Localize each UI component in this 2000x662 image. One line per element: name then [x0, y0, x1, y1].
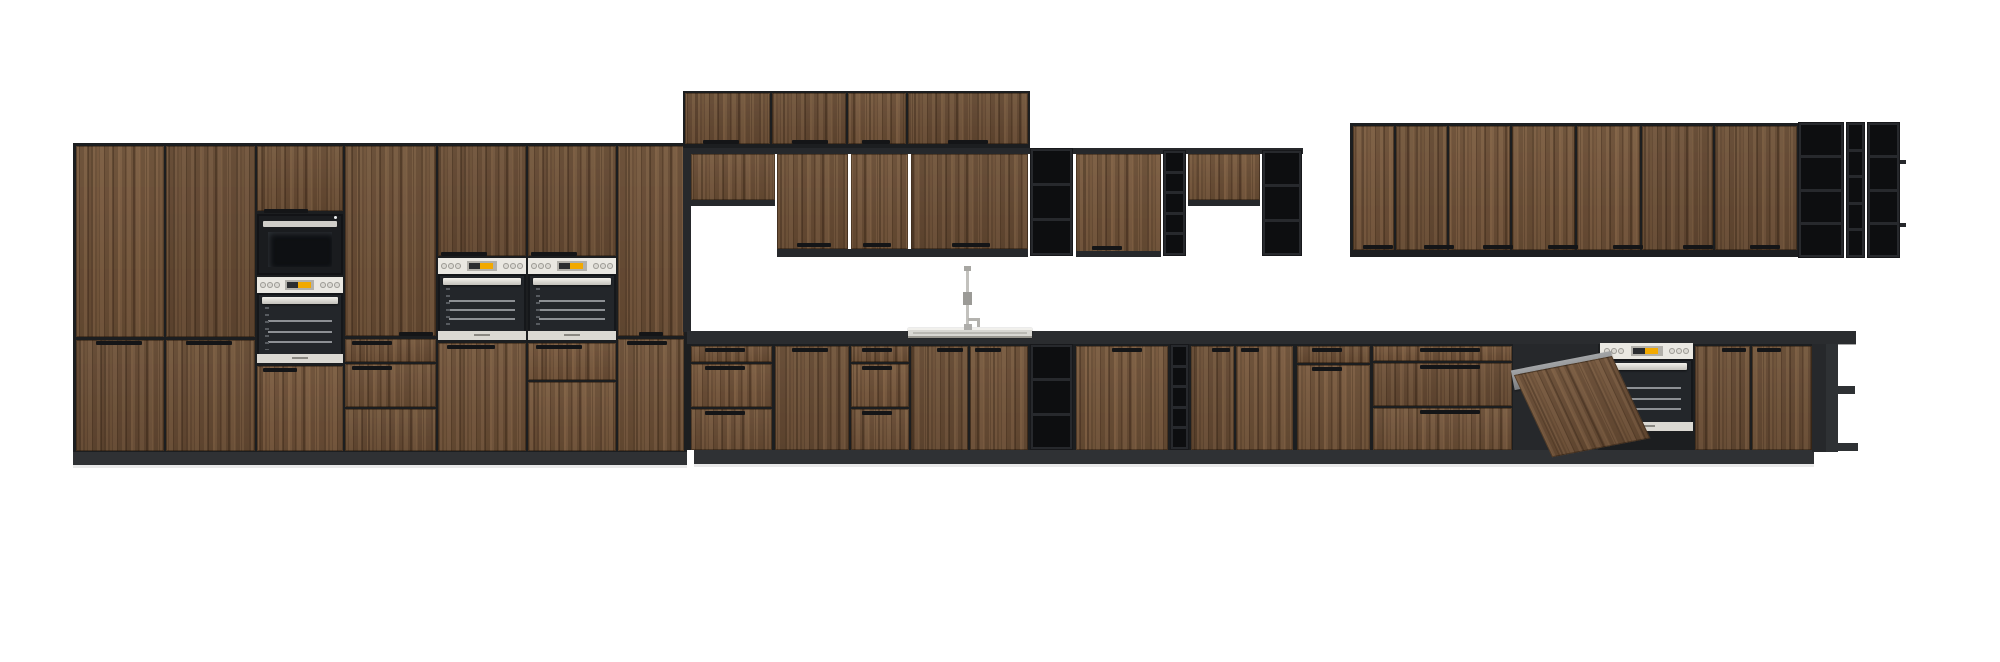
wall-door-short[interactable]: [1188, 154, 1260, 200]
appliance-column-drawer[interactable]: [257, 366, 343, 451]
handle: [1613, 245, 1643, 249]
end-open-shelf: [1838, 386, 1855, 394]
handle: [1420, 365, 1480, 369]
microwave-handle-bar: [263, 221, 337, 227]
oven-display-screen: [1633, 348, 1645, 354]
wall-door-3[interactable]: [911, 154, 1028, 249]
end-side-panel: [1812, 344, 1826, 452]
right-wall-door-1[interactable]: [1353, 126, 1394, 250]
open-shelf-grid-col-1[interactable]: [1798, 122, 1844, 258]
tall-door-4-upper[interactable]: [618, 146, 684, 336]
wall-oven-1-top-door[interactable]: [438, 146, 526, 256]
shelf-side-tip: [1900, 223, 1906, 227]
oven-rack: [449, 318, 514, 320]
cabinet-underside: [777, 249, 1028, 257]
handle: [536, 345, 582, 349]
handle: [96, 341, 142, 345]
oven-rack: [268, 320, 332, 322]
oven-display-value: [480, 263, 493, 269]
shelf-compartment: [1166, 235, 1183, 253]
end-shelf-board: [1826, 344, 1838, 452]
handle: [1312, 367, 1342, 371]
shelf-compartment: [1173, 409, 1186, 427]
handle: [937, 348, 963, 352]
base-door-1[interactable]: [775, 346, 849, 450]
handle: [1420, 410, 1480, 414]
shelf-compartment: [1033, 221, 1070, 253]
handle: [705, 411, 745, 415]
oven-rack-rail: [446, 288, 450, 327]
open-shelf-grid-col-3[interactable]: [1867, 122, 1900, 258]
base-run-plinth[interactable]: [694, 450, 1814, 464]
tall-built-in-oven[interactable]: [257, 277, 343, 363]
handle: [639, 332, 663, 336]
shelf-compartment: [1870, 192, 1897, 222]
wall-top-door-1[interactable]: [685, 93, 770, 144]
cabinet-underside: [691, 200, 775, 206]
compact-oven[interactable]: [257, 214, 343, 275]
shelf-compartment: [1265, 222, 1299, 253]
open-shelf-unit[interactable]: [1262, 150, 1302, 256]
shelf-compartment: [1173, 429, 1186, 447]
base-door-4[interactable]: [1236, 346, 1293, 450]
oven-display-screen: [469, 263, 480, 269]
handle: [627, 341, 667, 345]
right-wall-door-7[interactable]: [1715, 126, 1797, 250]
handle: [264, 209, 308, 213]
oven-knob: [1669, 348, 1675, 354]
shelf-compartment: [1849, 152, 1862, 176]
wall-door-2[interactable]: [851, 154, 908, 249]
open-shelf-unit[interactable]: [1030, 148, 1073, 256]
cabinet-underside: [1076, 251, 1161, 257]
shelf-compartment: [1166, 194, 1183, 212]
kitchen-elevation-canvas[interactable]: [0, 0, 2000, 662]
shelf-compartment: [1849, 178, 1862, 202]
open-shelf-grid-col-2[interactable]: [1846, 122, 1865, 258]
oven-knob: [1611, 348, 1617, 354]
base-drawer-4c[interactable]: [1373, 408, 1512, 450]
shelf-side-tip: [1900, 160, 1906, 164]
oven-knob: [1676, 348, 1682, 354]
base-drawer-1b[interactable]: [691, 364, 772, 407]
wall-oven-2-lower-door[interactable]: [528, 382, 616, 451]
handle: [975, 348, 1001, 352]
handle: [1092, 246, 1122, 250]
oven-knob: [260, 282, 266, 288]
tall-door-4-lower[interactable]: [618, 339, 684, 451]
base-open-shelf-column[interactable]: [1170, 344, 1189, 450]
oven-handle-bar: [262, 297, 338, 304]
tall-door-3[interactable]: [345, 146, 436, 336]
oven-rack: [268, 331, 332, 333]
oven-knob: [517, 263, 523, 269]
base-drawer-4b[interactable]: [1373, 363, 1512, 406]
handle: [705, 348, 745, 352]
right-wall-door-4[interactable]: [1512, 126, 1575, 250]
tall-door-1-upper[interactable]: [76, 146, 164, 337]
base-drawer-1c[interactable]: [691, 409, 772, 450]
wall-oven-2[interactable]: [528, 258, 616, 340]
oven-brand-mark: [564, 334, 580, 336]
faucet-spray-head: [963, 292, 972, 305]
wall-oven-1-lower-door[interactable]: [438, 343, 526, 451]
tall-door-2-lower[interactable]: [166, 340, 255, 451]
handle: [1424, 245, 1454, 249]
shelf-compartment: [1033, 381, 1070, 412]
oven-rack: [539, 300, 604, 302]
left-run-plinth[interactable]: [73, 452, 687, 465]
oven-rack-rail: [536, 288, 540, 327]
handle: [1363, 245, 1393, 249]
handle: [1722, 348, 1746, 352]
oven-knob: [267, 282, 273, 288]
shelf-compartment: [1870, 158, 1897, 188]
oven-knob: [334, 282, 340, 288]
oven-handle-bar: [443, 278, 520, 285]
oven-display-value: [298, 282, 311, 288]
shelf-compartment: [1033, 186, 1070, 218]
sink-rim-shadow: [908, 336, 1032, 338]
oven-rack: [539, 318, 604, 320]
shelf-compartment: [1166, 174, 1183, 192]
handle: [797, 243, 831, 247]
handle: [862, 348, 892, 352]
wall-oven-1[interactable]: [438, 258, 526, 340]
handle: [952, 243, 990, 247]
tall-door-2-upper[interactable]: [166, 146, 255, 337]
oven-knob: [274, 282, 280, 288]
shelf-compartment: [1801, 225, 1841, 255]
faucet-top-cap: [964, 266, 971, 271]
handle: [352, 366, 392, 370]
faucet-base: [964, 324, 972, 330]
oven-display-screen: [559, 263, 570, 269]
shelf-compartment: [1870, 225, 1897, 255]
faucet-spout-tip: [977, 318, 980, 327]
sink-basin-line: [913, 332, 1027, 334]
oven-knob: [593, 263, 599, 269]
oven-knob: [600, 263, 606, 269]
handle: [792, 348, 828, 352]
wall-top-door-2[interactable]: [772, 93, 846, 144]
tall-end-side-panel: [683, 148, 691, 332]
sink-base-door-left[interactable]: [911, 346, 968, 450]
handle: [862, 411, 892, 415]
handle: [1241, 348, 1259, 352]
small-wall-cabinet-door[interactable]: [691, 154, 775, 200]
handle: [705, 366, 745, 370]
handle: [1420, 348, 1480, 352]
base-run-floor-shadow: [694, 464, 1814, 467]
shelf-compartment: [1166, 153, 1183, 171]
oven-knob: [510, 263, 516, 269]
shelf-compartment: [1801, 158, 1841, 188]
oven-rack: [449, 300, 514, 302]
wall-top-door-3[interactable]: [848, 93, 906, 144]
base-door-6[interactable]: [1695, 346, 1750, 450]
microwave-indicator: [334, 216, 337, 219]
shelf-compartment: [1173, 388, 1186, 406]
base-drawer-2c[interactable]: [851, 409, 909, 450]
shelf-compartment: [1166, 215, 1183, 233]
handle: [399, 332, 433, 336]
oven-rack: [449, 309, 514, 311]
oven-handle-bar: [533, 278, 610, 285]
shelf-compartment: [1849, 205, 1862, 229]
shelf-compartment: [1173, 347, 1186, 365]
handle: [447, 345, 495, 349]
base-drawer-2b[interactable]: [851, 364, 909, 407]
base-door-7[interactable]: [1752, 346, 1812, 450]
drawer-stack-1-mid[interactable]: [345, 364, 436, 407]
handle: [1757, 348, 1781, 352]
left-run-floor-shadow: [73, 465, 687, 468]
oven-display-value: [570, 263, 583, 269]
shelf-compartment: [1870, 125, 1897, 155]
handle: [862, 366, 892, 370]
cabinet-underside: [1188, 200, 1260, 206]
handle: [792, 140, 828, 144]
right-wall-door-6[interactable]: [1642, 126, 1713, 250]
base-door-5[interactable]: [1297, 365, 1370, 450]
oven-brand-mark: [292, 357, 308, 359]
appliance-column-top-door[interactable]: [257, 146, 343, 211]
shelf-compartment: [1033, 151, 1070, 183]
handle: [263, 368, 297, 372]
microwave-screen: [268, 232, 332, 267]
oven-rack: [539, 309, 604, 311]
wall-oven-2-top-door[interactable]: [528, 146, 616, 256]
handle: [186, 341, 232, 345]
oven-rack-rail: [265, 307, 269, 350]
wall-door-4[interactable]: [1076, 154, 1161, 254]
wall-door-1[interactable]: [777, 154, 848, 249]
drawer-stack-1-bottom[interactable]: [345, 409, 436, 451]
handle: [1312, 348, 1342, 352]
oven-rack: [268, 341, 332, 343]
handle: [862, 140, 890, 144]
handle: [1212, 348, 1230, 352]
handle: [703, 140, 739, 144]
handle: [1483, 245, 1513, 249]
handle: [863, 243, 891, 247]
handle: [1750, 245, 1780, 249]
shelf-compartment: [1849, 231, 1862, 255]
shelf-compartment: [1173, 368, 1186, 386]
handle: [531, 252, 577, 256]
wall-top-door-4[interactable]: [908, 93, 1028, 144]
right-wall-door-3[interactable]: [1449, 126, 1510, 250]
shelf-compartment: [1265, 187, 1299, 218]
handle: [352, 341, 392, 345]
base-open-shelf[interactable]: [1030, 344, 1073, 450]
handle: [948, 140, 988, 144]
base-door-3[interactable]: [1191, 346, 1234, 450]
oven-display-screen: [287, 282, 298, 288]
right-wall-door-2[interactable]: [1396, 126, 1447, 250]
shelf-compartment: [1033, 347, 1070, 378]
handle: [1683, 245, 1713, 249]
sink-base-door-right[interactable]: [970, 346, 1028, 450]
shelf-compartment: [1849, 125, 1862, 149]
open-shelf-column[interactable]: [1163, 150, 1186, 256]
base-door-2[interactable]: [1076, 346, 1168, 450]
oven-knob: [503, 263, 509, 269]
handle: [441, 252, 487, 256]
oven-display-value: [1645, 348, 1658, 354]
tall-door-1-lower[interactable]: [76, 340, 164, 451]
shelf-compartment: [1033, 416, 1070, 447]
right-wall-door-5[interactable]: [1577, 126, 1640, 250]
handle: [1112, 348, 1142, 352]
oven-knob: [607, 263, 613, 269]
oven-brand-mark: [474, 334, 490, 336]
shelf-compartment: [1801, 192, 1841, 222]
end-open-shelf: [1838, 443, 1858, 451]
faucet[interactable]: [955, 266, 985, 330]
handle: [1548, 245, 1578, 249]
shelf-compartment: [1801, 125, 1841, 155]
shelf-compartment: [1265, 153, 1299, 184]
